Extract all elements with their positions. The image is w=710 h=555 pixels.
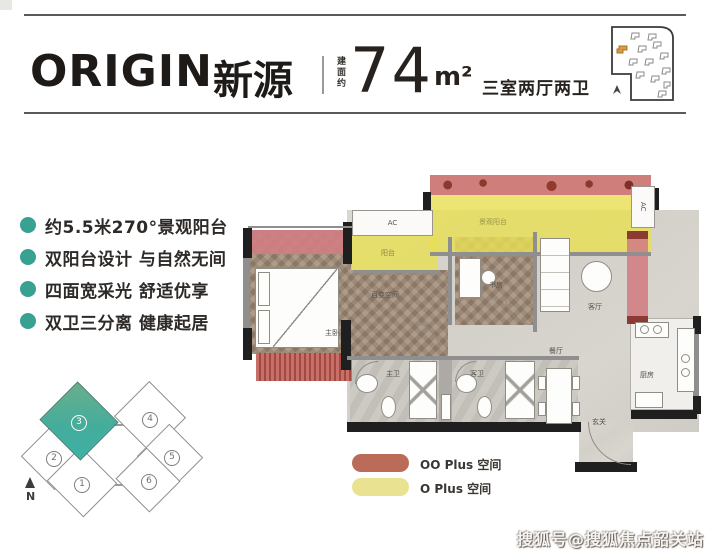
window-sill: [248, 226, 352, 228]
wall-segment: [693, 396, 701, 414]
fixture-shower: [409, 361, 437, 419]
room-label-living: 客厅: [588, 302, 602, 312]
layout-spec: 三室两厅两卫: [482, 74, 590, 99]
wall-segment: [243, 228, 252, 258]
area-unit: m²: [434, 62, 472, 92]
site-plan: [602, 24, 694, 106]
overlay-side-cap-top: [627, 231, 648, 239]
bullet-dot-icon: [20, 281, 36, 297]
overlay-balcony-master-top: [248, 230, 352, 254]
fixture-sink-bowl: [640, 325, 649, 334]
partition-wall: [448, 237, 452, 325]
room-label-kitchen: 厨房: [640, 370, 654, 380]
site-north-arrow-icon: [613, 85, 621, 94]
overlay-balcony-side: [627, 238, 648, 317]
ac-label: AC: [639, 202, 647, 212]
legend-swatch-oo-plus: [352, 454, 409, 472]
feature-item: 约5.5米270°景观阳台: [20, 214, 228, 236]
legend-label-oo-plus: OO Plus 空间: [420, 456, 501, 473]
feature-text: 双卫三分离 健康起居: [45, 309, 209, 334]
window-sill: [353, 270, 438, 273]
wall-segment: [243, 328, 252, 360]
furniture-dining-table: [546, 368, 572, 424]
room-label-balcony: 阳台: [381, 248, 395, 258]
feature-text: 四面宽采光 舒适优享: [45, 277, 209, 302]
ac-unit-right: AC: [631, 186, 655, 228]
furniture-desk: [459, 258, 481, 298]
corner-smudge: [0, 0, 12, 10]
header-bottom-rule: [24, 112, 686, 114]
unit-number: 2: [46, 451, 62, 467]
header-top-rule: [24, 14, 686, 16]
fixture-sink-bowl: [653, 325, 662, 334]
room-label-flex: 百变空间: [371, 290, 399, 300]
furniture-dining-chair: [572, 376, 580, 390]
partition-wall: [347, 356, 579, 360]
feature-item: 四面宽采光 舒适优享: [20, 278, 209, 300]
feature-item: 双阳台设计 与自然无间: [20, 246, 226, 268]
unit-name-cn: 新源: [213, 48, 293, 106]
overlay-planter-master-bottom: [256, 353, 352, 381]
furniture-dining-chair: [572, 402, 580, 416]
ac-closet: AC: [352, 210, 433, 236]
north-label: N: [26, 490, 35, 503]
building-key-plan: 1 2 3 4 5 6 N: [12, 372, 222, 538]
legend-swatch-o-plus: [352, 478, 409, 496]
window-wall: [243, 258, 249, 328]
flyer-canvas: ORIGIN 新源 建面约 74 m² 三室两厅两卫 约5.5米270°景观阳台…: [0, 0, 710, 555]
watermark-text: 搜狐号@搜狐焦点韶关站: [517, 526, 704, 550]
wall-segment: [631, 410, 697, 419]
brand-logo: ORIGIN: [30, 46, 213, 97]
furniture-dining-chair: [538, 376, 546, 390]
feature-text: 约5.5米270°景观阳台: [45, 213, 228, 238]
room-label-entry: 玄关: [592, 417, 606, 427]
floor-plan: AC AC: [243, 170, 703, 472]
fixture-toilet: [381, 396, 396, 418]
wall-segment: [343, 222, 352, 264]
unit-number: 5: [164, 450, 180, 466]
legend-label-o-plus: O Plus 空间: [420, 480, 491, 497]
furniture-pillow: [258, 272, 270, 306]
header-divider: [322, 56, 324, 94]
unit-number-highlighted: 3: [71, 415, 87, 431]
bullet-dot-icon: [20, 313, 36, 329]
overlay-planter-top: [430, 175, 651, 195]
wall-segment: [341, 320, 351, 370]
area-value: 74: [350, 34, 433, 107]
fixture-burner: [681, 368, 690, 377]
fixture-toilet: [477, 396, 492, 418]
room-label-bath-master: 主卫: [386, 369, 400, 379]
bullet-dot-icon: [20, 249, 36, 265]
furniture-pillow: [258, 310, 270, 344]
unit-number: 1: [74, 477, 90, 493]
room-label-view-balcony: 景观阳台: [479, 217, 507, 227]
bullet-dot-icon: [20, 217, 36, 233]
feature-text: 双阳台设计 与自然无间: [45, 245, 226, 270]
room-label-dining: 餐厅: [549, 346, 563, 356]
fixture-shower: [505, 361, 535, 419]
furniture-dining-chair: [538, 402, 546, 416]
room-label-study: 书房: [489, 280, 503, 290]
room-label-master: 主卧: [325, 328, 339, 338]
fixture-shaft-box: [441, 394, 451, 420]
fixture-kitchen-island: [635, 392, 663, 408]
north-arrow-icon: [25, 477, 35, 488]
fixture-burner: [681, 354, 690, 363]
ac-label: AC: [388, 219, 398, 227]
furniture-sofa: [540, 238, 570, 312]
feature-item: 双卫三分离 健康起居: [20, 310, 209, 332]
room-label-bath-guest: 客卫: [470, 369, 484, 379]
furniture-round-table: [581, 261, 612, 292]
unit-number: 4: [142, 412, 158, 428]
area-prefix-label: 建面约: [334, 56, 347, 89]
site-boundary: [612, 27, 673, 100]
unit-number: 6: [141, 474, 157, 490]
